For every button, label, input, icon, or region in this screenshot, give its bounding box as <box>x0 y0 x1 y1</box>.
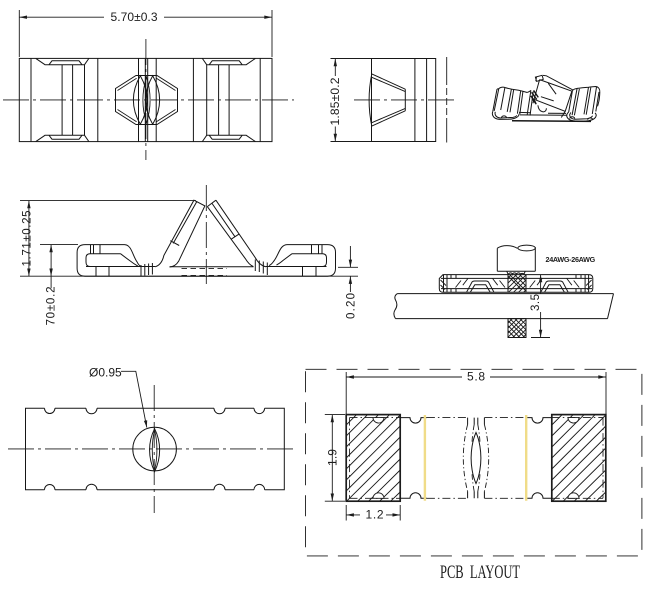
svg-text:1.85±0.2: 1.85±0.2 <box>328 77 342 125</box>
svg-text:1.71±0.25: 1.71±0.25 <box>21 211 33 267</box>
svg-text:70±0.2: 70±0.2 <box>45 287 57 326</box>
svg-text:5.8: 5.8 <box>467 370 485 384</box>
svg-text:1.2: 1.2 <box>366 508 384 522</box>
svg-text:0.20: 0.20 <box>345 293 357 319</box>
svg-text:24AWG-26AWG: 24AWG-26AWG <box>546 255 596 264</box>
svg-text:5.70±0.3: 5.70±0.3 <box>111 10 158 24</box>
svg-text:PCB LAYOUT: PCB LAYOUT <box>440 562 520 583</box>
svg-text:1.9: 1.9 <box>326 449 340 466</box>
svg-text:3.5: 3.5 <box>530 294 542 311</box>
svg-text:Ø0.95: Ø0.95 <box>89 366 122 380</box>
